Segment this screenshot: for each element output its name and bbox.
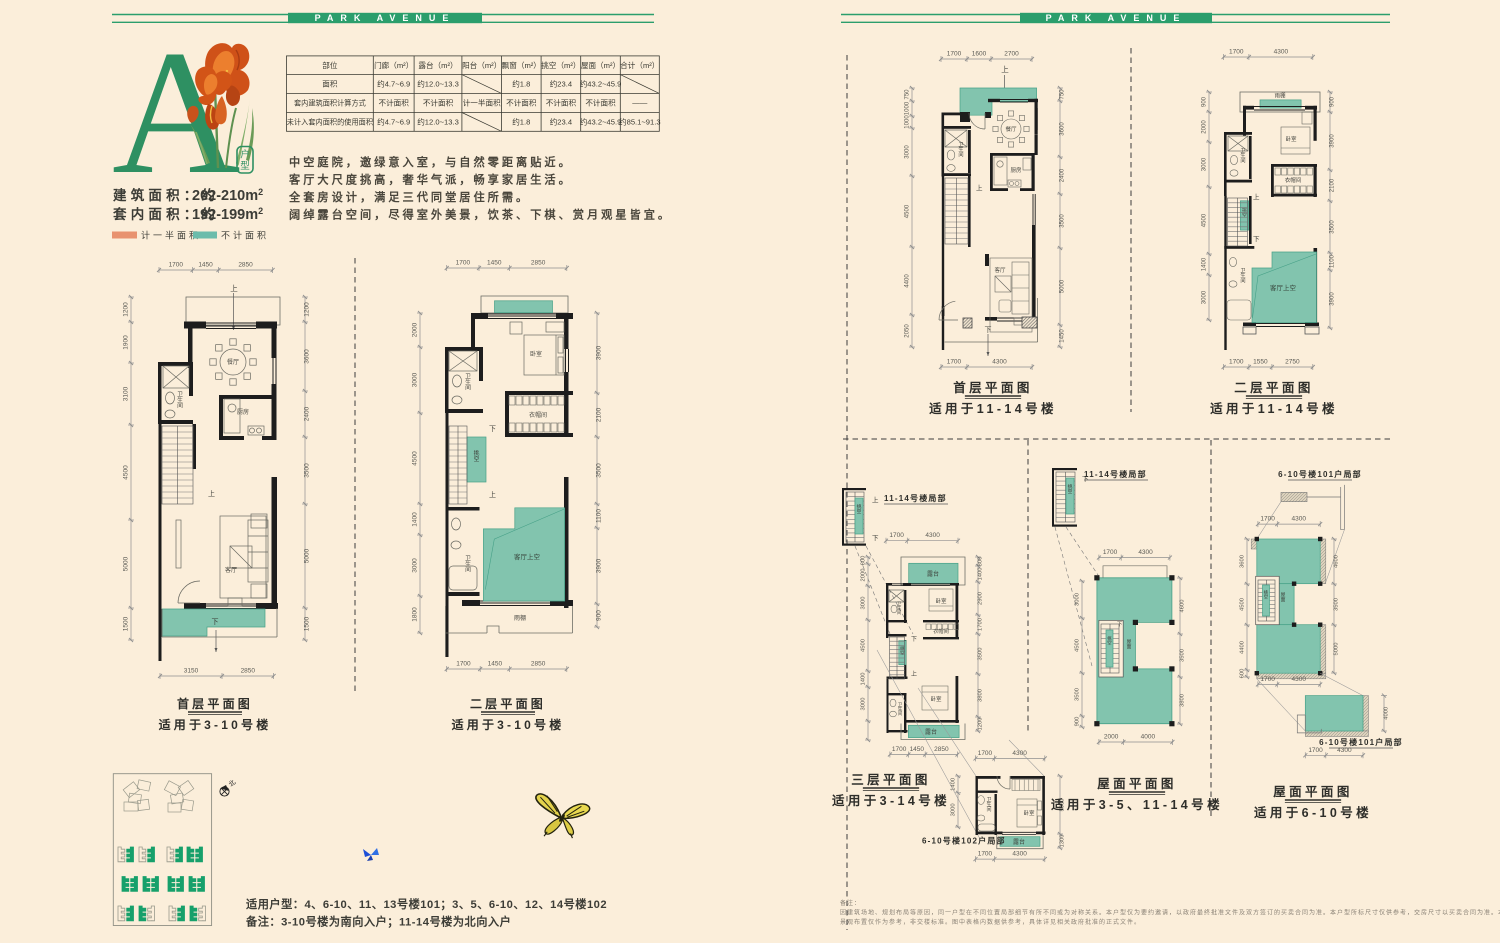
svg-text:约23.4: 约23.4 xyxy=(550,117,572,127)
svg-text:3500: 3500 xyxy=(1330,220,1336,234)
svg-text:2000: 2000 xyxy=(412,322,419,337)
svg-text:2400: 2400 xyxy=(304,406,311,421)
svg-text:——: —— xyxy=(632,99,648,108)
svg-text:3000: 3000 xyxy=(1202,157,1208,171)
svg-text:上: 上 xyxy=(976,183,983,192)
svg-text:3800: 3800 xyxy=(978,689,984,702)
svg-text:1700: 1700 xyxy=(456,661,471,668)
svg-text:首层平面图: 首层平面图 xyxy=(953,380,1033,395)
svg-text:3500: 3500 xyxy=(1334,598,1340,611)
svg-text:5000: 5000 xyxy=(304,548,311,563)
svg-text:挑空: 挑空 xyxy=(1264,589,1269,599)
svg-text:部位: 部位 xyxy=(322,60,338,70)
svg-text:屋面: 屋面 xyxy=(1281,592,1286,603)
svg-text:二层平面图: 二层平面图 xyxy=(1234,381,1314,395)
svg-text:挑空: 挑空 xyxy=(1068,483,1073,495)
svg-text:1200: 1200 xyxy=(123,302,130,317)
svg-text:卧室: 卧室 xyxy=(930,695,942,703)
svg-text:不计面积: 不计面积 xyxy=(546,98,577,108)
svg-text:5000: 5000 xyxy=(1060,279,1066,293)
svg-text:2000: 2000 xyxy=(861,569,867,582)
svg-text:3900: 3900 xyxy=(596,345,603,360)
svg-text:2100: 2100 xyxy=(596,407,603,422)
svg-text:上: 上 xyxy=(489,490,496,499)
svg-text:1700: 1700 xyxy=(947,51,962,58)
svg-text:约4.7~6.9: 约4.7~6.9 xyxy=(377,117,410,127)
svg-text:三层平面图: 三层平面图 xyxy=(851,773,931,787)
svg-text:型: 型 xyxy=(240,161,250,172)
svg-text:二层平面图: 二层平面图 xyxy=(470,697,546,711)
svg-text:1700: 1700 xyxy=(978,851,993,858)
svg-text:上: 上 xyxy=(1001,65,1009,74)
svg-text:3100: 3100 xyxy=(123,386,130,401)
svg-text:6-10号楼101户局部: 6-10号楼101户局部 xyxy=(1278,469,1362,479)
svg-text:适用于11-14号楼: 适用于11-14号楼 xyxy=(929,401,1057,416)
svg-text:阔绰露台空间，尽得室外美景，饮茶、下棋、赏月观星皆宜。: 阔绰露台空间，尽得室外美景，饮茶、下棋、赏月观星皆宜。 xyxy=(289,208,672,222)
svg-text:2750: 2750 xyxy=(1285,359,1300,366)
svg-text:1450: 1450 xyxy=(910,746,925,753)
svg-text:户: 户 xyxy=(240,149,250,161)
svg-text:2050: 2050 xyxy=(905,324,911,338)
svg-text:客厅大尺度挑高，奢华气派，畅享家居生活。: 客厅大尺度挑高，奢华气派，畅享家居生活。 xyxy=(288,173,573,187)
svg-text:不计面积: 不计面积 xyxy=(423,98,454,108)
svg-text:卫生间: 卫生间 xyxy=(897,601,902,616)
svg-text:约43.2~45.9: 约43.2~45.9 xyxy=(580,79,622,89)
svg-text:1000: 1000 xyxy=(905,115,911,129)
svg-text:卫生间: 卫生间 xyxy=(958,141,963,158)
svg-text:适用于11-14号楼: 适用于11-14号楼 xyxy=(1210,401,1338,416)
svg-text:约12.0~13.3: 约12.0~13.3 xyxy=(417,117,459,127)
svg-text:1400: 1400 xyxy=(412,512,419,527)
svg-text:上: 上 xyxy=(1253,192,1260,201)
svg-text:衣帽间: 衣帽间 xyxy=(933,627,949,635)
svg-text:卫生间: 卫生间 xyxy=(898,702,903,717)
svg-text:1550: 1550 xyxy=(1253,359,1268,366)
svg-text:1500: 1500 xyxy=(304,616,311,631)
svg-text:下: 下 xyxy=(872,534,879,542)
svg-text:屋面（m²）: 屋面（m²） xyxy=(581,61,620,70)
svg-text:1800: 1800 xyxy=(412,607,419,622)
svg-text:1700: 1700 xyxy=(1260,516,1275,523)
svg-text:3000: 3000 xyxy=(412,558,419,573)
svg-text:卫生间: 卫生间 xyxy=(465,373,471,392)
svg-text:上: 上 xyxy=(911,670,917,678)
svg-text:卫生间: 卫生间 xyxy=(465,555,471,574)
svg-text:4500: 4500 xyxy=(1075,639,1081,652)
svg-text:约1.8: 约1.8 xyxy=(512,79,530,89)
svg-text:2400: 2400 xyxy=(1060,168,1066,182)
svg-text:适用于3-10号楼: 适用于3-10号楼 xyxy=(452,717,565,732)
svg-text:202-210m2: 202-210m2 xyxy=(192,187,263,204)
svg-text:挑空: 挑空 xyxy=(857,503,862,515)
svg-text:4500: 4500 xyxy=(1202,213,1208,227)
svg-text:2850: 2850 xyxy=(241,668,256,675)
svg-text:192-199m2: 192-199m2 xyxy=(192,206,263,223)
svg-text:1200: 1200 xyxy=(304,302,311,317)
svg-text:上: 上 xyxy=(208,489,215,498)
svg-text:3600: 3600 xyxy=(304,349,311,364)
svg-text:4300: 4300 xyxy=(925,532,940,539)
svg-text:计一半面积: 计一半面积 xyxy=(463,98,501,108)
svg-text:屋面平面图: 屋面平面图 xyxy=(1097,776,1177,791)
svg-text:客厅: 客厅 xyxy=(225,566,237,574)
svg-text:5000: 5000 xyxy=(1334,643,1340,656)
svg-text:5000: 5000 xyxy=(123,556,130,571)
svg-text:厨房: 厨房 xyxy=(1010,166,1022,174)
svg-text:1700: 1700 xyxy=(947,359,962,366)
svg-text:800: 800 xyxy=(978,557,984,567)
svg-text:下: 下 xyxy=(985,326,992,334)
svg-text:3500: 3500 xyxy=(596,463,603,478)
svg-text:2100: 2100 xyxy=(1330,178,1336,192)
svg-text:门廊（m²）: 门廊（m²） xyxy=(374,60,413,70)
svg-text:卧室: 卧室 xyxy=(1285,135,1297,143)
svg-text:卫生间: 卫生间 xyxy=(1240,267,1245,284)
svg-text:1700: 1700 xyxy=(1308,747,1323,754)
svg-text:上: 上 xyxy=(872,495,879,504)
svg-text:客厅上空: 客厅上空 xyxy=(514,552,541,561)
svg-text:PARK AVENUE: PARK AVENUE xyxy=(1046,13,1187,23)
svg-text:600: 600 xyxy=(861,556,867,566)
svg-text:中空庭院，邀绿意入室，与自然零距离贴近。: 中空庭院，邀绿意入室，与自然零距离贴近。 xyxy=(289,155,573,169)
svg-text:景观布置仅作为参考，非交楼标准。图中表格内数据供参考，具体详: 景观布置仅作为参考，非交楼标准。图中表格内数据供参考，具体详见相关政府批准的正式… xyxy=(840,918,1141,926)
svg-text:上: 上 xyxy=(230,284,238,293)
svg-text:3900: 3900 xyxy=(1330,292,1336,306)
svg-text:1450: 1450 xyxy=(488,661,503,668)
svg-text:下: 下 xyxy=(489,425,496,433)
svg-text:不计面积: 不计面积 xyxy=(506,98,537,108)
svg-text:约4.7~6.9: 约4.7~6.9 xyxy=(377,79,410,89)
svg-text:1000: 1000 xyxy=(905,101,911,115)
svg-text:3500: 3500 xyxy=(304,463,311,478)
svg-text:3800: 3800 xyxy=(1180,694,1186,707)
svg-text:2000: 2000 xyxy=(1104,734,1119,741)
svg-text:阳台（m²）: 阳台（m²） xyxy=(462,60,501,70)
svg-text:不计面积: 不计面积 xyxy=(221,230,269,241)
svg-text:2850: 2850 xyxy=(238,262,253,269)
svg-text:1100: 1100 xyxy=(596,509,603,523)
svg-text:衣帽间: 衣帽间 xyxy=(1285,176,1302,184)
svg-text:下: 下 xyxy=(911,636,917,643)
svg-text:900: 900 xyxy=(1330,96,1336,107)
svg-text:卧室: 卧室 xyxy=(530,350,542,358)
svg-text:4300: 4300 xyxy=(1012,851,1027,858)
svg-text:1700: 1700 xyxy=(1229,49,1244,56)
svg-text:900: 900 xyxy=(596,610,603,621)
svg-text:1400: 1400 xyxy=(861,673,867,686)
svg-text:3900: 3900 xyxy=(596,558,603,573)
svg-text:3000: 3000 xyxy=(861,597,867,610)
svg-text:餐厅: 餐厅 xyxy=(227,358,239,366)
svg-text:6-10号楼101户局部: 6-10号楼101户局部 xyxy=(1319,737,1403,747)
svg-text:合计（m²）: 合计（m²） xyxy=(620,60,659,70)
svg-text:约1.8: 约1.8 xyxy=(512,117,530,127)
svg-text:约23.4: 约23.4 xyxy=(550,79,572,89)
svg-text:因建筑场地、规划布局等原因，同一户型在不同位置局部细节有所不: 因建筑场地、规划布局等原因，同一户型在不同位置局部细节有所不同或为对称关系。本户… xyxy=(840,909,1500,917)
svg-text:3000: 3000 xyxy=(412,372,419,387)
svg-text:4000: 4000 xyxy=(1141,734,1156,741)
svg-text:飘窗（m²）: 飘窗（m²） xyxy=(502,60,541,70)
svg-text:11-14号楼局部: 11-14号楼局部 xyxy=(884,493,947,503)
svg-text:1700: 1700 xyxy=(889,532,904,539)
svg-text:1400: 1400 xyxy=(951,778,957,791)
svg-text:900: 900 xyxy=(1075,717,1081,727)
svg-text:客厅上空: 客厅上空 xyxy=(1270,283,1297,292)
svg-text:1700: 1700 xyxy=(1103,549,1118,556)
svg-text:1700: 1700 xyxy=(456,260,471,267)
svg-text:卫生间: 卫生间 xyxy=(986,797,991,813)
svg-text:备注：3-10号楼为南向入户；11-14号楼为北向入户: 备注：3-10号楼为南向入户；11-14号楼为北向入户 xyxy=(245,915,511,929)
svg-text:4300: 4300 xyxy=(1337,747,1352,754)
svg-text:6-10号楼102户局部: 6-10号楼102户局部 xyxy=(922,836,1006,846)
svg-text:挑空（m²）: 挑空（m²） xyxy=(541,60,580,70)
svg-text:3000: 3000 xyxy=(1075,593,1081,606)
svg-text:卫生间: 卫生间 xyxy=(1240,147,1245,164)
svg-text:屋面: 屋面 xyxy=(1127,639,1132,650)
svg-text:面积: 面积 xyxy=(322,79,338,89)
svg-text:衣帽间: 衣帽间 xyxy=(529,411,547,419)
svg-text:4300: 4300 xyxy=(1292,516,1307,523)
svg-text:1700: 1700 xyxy=(169,262,184,269)
svg-text:1450: 1450 xyxy=(487,260,502,267)
svg-text:卫生间: 卫生间 xyxy=(177,391,183,410)
svg-text:4400: 4400 xyxy=(905,274,911,288)
svg-text:厨房: 厨房 xyxy=(237,408,249,416)
svg-text:2850: 2850 xyxy=(531,260,546,267)
svg-text:3000: 3000 xyxy=(861,698,867,711)
svg-text:3500: 3500 xyxy=(1075,688,1081,701)
svg-text:露台: 露台 xyxy=(927,570,939,578)
svg-text:1500: 1500 xyxy=(123,616,130,631)
svg-text:750: 750 xyxy=(905,89,911,100)
svg-text:4600: 4600 xyxy=(1180,600,1186,613)
svg-text:4300: 4300 xyxy=(1138,549,1153,556)
svg-text:适用于3-10号楼: 适用于3-10号楼 xyxy=(159,717,272,732)
svg-text:露台: 露台 xyxy=(925,728,937,736)
svg-text:3500: 3500 xyxy=(1180,649,1186,662)
svg-text:1450: 1450 xyxy=(1060,329,1066,343)
svg-text:1100: 1100 xyxy=(1330,254,1336,268)
svg-text:600: 600 xyxy=(1240,669,1246,679)
svg-text:适用于3-5、11-14号楼: 适用于3-5、11-14号楼 xyxy=(1051,797,1223,812)
svg-text:1700: 1700 xyxy=(978,750,993,757)
svg-text:卧室: 卧室 xyxy=(1023,809,1035,817)
svg-text:约43.2~45.9: 约43.2~45.9 xyxy=(580,117,622,127)
svg-text:卧室: 卧室 xyxy=(935,597,947,605)
svg-text:下: 下 xyxy=(212,618,219,626)
svg-text:1400: 1400 xyxy=(978,568,984,581)
svg-text:3600: 3600 xyxy=(1060,122,1066,136)
svg-text:4500: 4500 xyxy=(861,639,867,652)
svg-text:挑空: 挑空 xyxy=(1107,635,1112,645)
svg-text:计一半面积: 计一半面积 xyxy=(141,230,201,241)
svg-text:雨棚: 雨棚 xyxy=(514,614,526,622)
svg-text:不计面积: 不计面积 xyxy=(379,98,410,108)
svg-text:适用于6-10号楼: 适用于6-10号楼 xyxy=(1254,805,1372,820)
svg-text:4300: 4300 xyxy=(1012,750,1027,757)
svg-text:4500: 4500 xyxy=(905,204,911,218)
svg-text:未计入套内面积的使用面积: 未计入套内面积的使用面积 xyxy=(287,118,373,127)
svg-text:PARK AVENUE: PARK AVENUE xyxy=(315,13,456,23)
svg-text:1700: 1700 xyxy=(892,746,907,753)
svg-text:露台: 露台 xyxy=(1013,838,1025,846)
svg-text:不计面积: 不计面积 xyxy=(585,98,616,108)
svg-text:适用户型：4、6-10、11、13号楼101；3、5、6-1: 适用户型：4、6-10、11、13号楼101；3、5、6-10、12、14号楼1… xyxy=(246,897,607,911)
svg-text:11-14号楼局部: 11-14号楼局部 xyxy=(1084,469,1147,479)
svg-text:1700: 1700 xyxy=(1260,676,1275,683)
svg-text:1400: 1400 xyxy=(1202,257,1208,271)
svg-text:首层平面图: 首层平面图 xyxy=(177,696,253,711)
svg-text:雨棚: 雨棚 xyxy=(1274,92,1286,100)
svg-text:3000: 3000 xyxy=(951,803,957,816)
svg-text:4300: 4300 xyxy=(992,359,1007,366)
svg-text:4300: 4300 xyxy=(1292,676,1307,683)
svg-text:露台（m²）: 露台（m²） xyxy=(418,60,457,70)
svg-text:750: 750 xyxy=(1060,89,1066,100)
svg-text:4000: 4000 xyxy=(1384,707,1390,720)
svg-text:下: 下 xyxy=(1117,621,1123,628)
svg-text:3000: 3000 xyxy=(1202,290,1208,304)
svg-text:3500: 3500 xyxy=(978,648,984,661)
svg-text:下: 下 xyxy=(1253,235,1260,243)
svg-text:1200: 1200 xyxy=(978,718,984,731)
svg-text:1700: 1700 xyxy=(978,618,984,631)
svg-text:挑空: 挑空 xyxy=(474,449,480,463)
svg-text:3600: 3600 xyxy=(1240,555,1246,568)
svg-text:餐厅: 餐厅 xyxy=(1005,125,1017,133)
svg-text:2850: 2850 xyxy=(934,746,949,753)
svg-text:4500: 4500 xyxy=(123,465,130,480)
svg-text:4400: 4400 xyxy=(1240,641,1246,654)
svg-text:2000: 2000 xyxy=(1202,120,1208,134)
svg-text:客厅: 客厅 xyxy=(994,266,1006,274)
svg-text:3150: 3150 xyxy=(184,668,199,675)
svg-text:套内建筑面积计算方式: 套内建筑面积计算方式 xyxy=(294,99,366,108)
svg-text:3900: 3900 xyxy=(1330,134,1336,148)
svg-text:1300: 1300 xyxy=(1060,835,1066,848)
svg-text:2700: 2700 xyxy=(1004,51,1019,58)
svg-text:4600: 4600 xyxy=(1334,555,1340,568)
svg-text:适用于3-14号楼: 适用于3-14号楼 xyxy=(832,793,950,808)
svg-text:1700: 1700 xyxy=(1229,359,1244,366)
svg-text:1450: 1450 xyxy=(198,262,213,269)
svg-text:全套房设计，满足三代同堂居住所需。: 全套房设计，满足三代同堂居住所需。 xyxy=(288,190,530,204)
svg-text:3500: 3500 xyxy=(1060,214,1066,228)
svg-text:1900: 1900 xyxy=(123,335,130,350)
svg-text:约85.1~91.3: 约85.1~91.3 xyxy=(619,117,661,127)
svg-text:4300: 4300 xyxy=(1274,49,1289,56)
svg-text:备注：: 备注： xyxy=(840,899,861,907)
svg-text:屋面平面图: 屋面平面图 xyxy=(1273,784,1353,799)
svg-text:4500: 4500 xyxy=(412,451,419,466)
svg-text:1600: 1600 xyxy=(972,51,987,58)
svg-text:4500: 4500 xyxy=(1240,598,1246,611)
svg-text:3000: 3000 xyxy=(905,145,911,159)
svg-text:约12.0~13.3: 约12.0~13.3 xyxy=(417,79,459,89)
svg-text:900: 900 xyxy=(1202,96,1208,107)
svg-text:2900: 2900 xyxy=(978,592,984,605)
svg-text:2850: 2850 xyxy=(531,661,546,668)
